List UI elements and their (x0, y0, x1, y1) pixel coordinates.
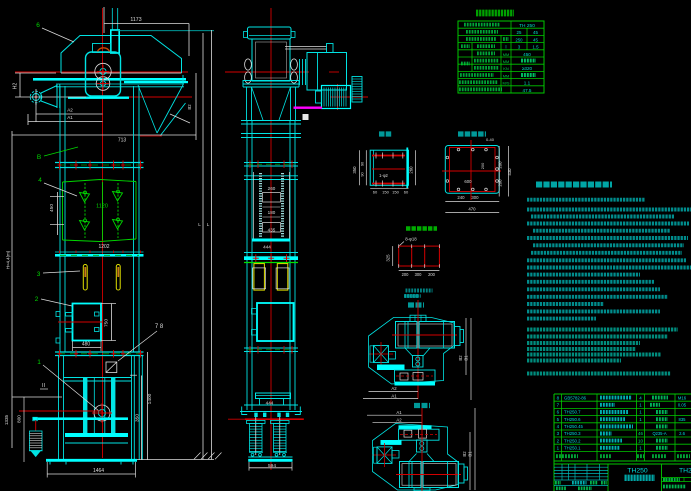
svg-text:1464: 1464 (93, 468, 104, 474)
svg-text:250: 250 (516, 37, 524, 42)
svg-text:45: 45 (533, 37, 538, 42)
svg-text:480: 480 (82, 342, 91, 348)
svg-text:2: 2 (35, 296, 39, 303)
svg-text:TH 250: TH 250 (519, 23, 535, 29)
svg-text:B2: B2 (187, 104, 192, 110)
svg-text:200: 200 (402, 272, 410, 277)
svg-text:180: 180 (268, 210, 276, 215)
svg-text:200: 200 (428, 272, 436, 277)
svg-text:200: 200 (498, 161, 503, 169)
svg-text:0.05: 0.05 (678, 403, 687, 408)
svg-text:600: 600 (464, 179, 472, 184)
svg-text:435: 435 (268, 228, 276, 233)
svg-text:TH2: TH2 (679, 468, 691, 475)
svg-text:470: 470 (468, 207, 476, 212)
svg-text:444: 444 (263, 245, 271, 250)
svg-text:6: 6 (36, 22, 40, 29)
svg-text:450: 450 (523, 52, 531, 57)
svg-text:260: 260 (268, 186, 276, 191)
svg-text:MM: MM (503, 52, 509, 57)
svg-text:A1: A1 (391, 394, 397, 399)
svg-text:1120: 1120 (96, 204, 108, 210)
svg-text:750: 750 (104, 319, 110, 327)
svg-text:TH250.7: TH250.7 (564, 410, 581, 415)
svg-text:60: 60 (404, 190, 409, 195)
svg-text:430: 430 (507, 168, 512, 176)
svg-text:10: 10 (638, 438, 643, 443)
svg-text:713: 713 (118, 138, 127, 144)
svg-text:1: 1 (37, 359, 41, 366)
svg-text:1173: 1173 (130, 17, 141, 23)
svg-text:45: 45 (533, 30, 538, 35)
svg-text:A1: A1 (67, 115, 73, 120)
svg-text:350: 350 (135, 414, 141, 422)
svg-text:M16: M16 (678, 395, 687, 400)
svg-text:MM: MM (503, 73, 509, 78)
svg-text:150: 150 (392, 190, 399, 195)
svg-text:B1: B1 (464, 355, 469, 361)
svg-text:H=4.4(m): H=4.4(m) (6, 250, 11, 269)
svg-text:0-40: 0-40 (486, 137, 495, 142)
svg-text:A2: A2 (391, 386, 397, 391)
svg-text:Q235-A: Q235-A (652, 431, 666, 436)
svg-text:60: 60 (373, 190, 378, 195)
svg-text:25: 25 (517, 30, 522, 35)
svg-text:TH250.2: TH250.2 (564, 438, 581, 443)
svg-text:A1: A1 (396, 410, 402, 415)
svg-text:M/S: M/S (503, 81, 510, 86)
svg-text:GB5782-86: GB5782-86 (564, 395, 587, 400)
svg-text:1-φ2: 1-φ2 (379, 173, 388, 178)
svg-text:L: L (198, 222, 201, 227)
svg-text:B: B (37, 154, 41, 161)
svg-text:B2: B2 (458, 355, 463, 361)
svg-text:l: l (506, 45, 507, 50)
svg-text:TH250.45: TH250.45 (564, 424, 583, 429)
svg-text:KN: KN (503, 66, 509, 71)
svg-text:325: 325 (386, 254, 391, 262)
svg-text:≥320: ≥320 (522, 66, 533, 71)
svg-text:A2: A2 (67, 108, 73, 113)
svg-text:TH250.6: TH250.6 (564, 417, 581, 422)
svg-text:A2: A2 (396, 417, 402, 422)
svg-text:150: 150 (382, 190, 389, 195)
svg-text:1.5: 1.5 (532, 45, 539, 50)
svg-text:1.1: 1.1 (524, 81, 531, 86)
svg-text:300: 300 (471, 195, 479, 200)
svg-text:B1: B1 (468, 451, 473, 457)
svg-text:260: 260 (409, 166, 414, 174)
svg-text:B2: B2 (462, 451, 467, 457)
svg-text:1202: 1202 (98, 244, 109, 250)
svg-text:800: 800 (17, 415, 22, 423)
svg-text:7 8: 7 8 (155, 324, 164, 330)
svg-text:835: 835 (679, 417, 687, 422)
svg-text:L: L (207, 222, 210, 227)
svg-text:240: 240 (457, 195, 465, 200)
svg-text:MM: MM (503, 59, 509, 64)
svg-text:350: 350 (352, 166, 357, 174)
svg-text:TH250: TH250 (627, 468, 648, 475)
svg-text:II: II (42, 383, 46, 389)
svg-text:300: 300 (415, 272, 423, 277)
svg-text:TH250.3: TH250.3 (564, 431, 581, 436)
svg-text:200: 200 (498, 179, 503, 187)
svg-text:8-φ18: 8-φ18 (405, 237, 417, 242)
svg-text:1335: 1335 (4, 414, 9, 425)
svg-text:200: 200 (480, 162, 485, 169)
svg-text:47.5: 47.5 (523, 88, 532, 93)
svg-text:H2: H2 (13, 83, 19, 90)
svg-text:TH250.1: TH250.1 (564, 446, 581, 451)
svg-text:3: 3 (37, 271, 41, 278)
svg-text:450: 450 (49, 204, 55, 212)
svg-text:2.6: 2.6 (679, 431, 685, 436)
svg-text:46: 46 (638, 431, 643, 436)
svg-text:4: 4 (38, 177, 42, 184)
